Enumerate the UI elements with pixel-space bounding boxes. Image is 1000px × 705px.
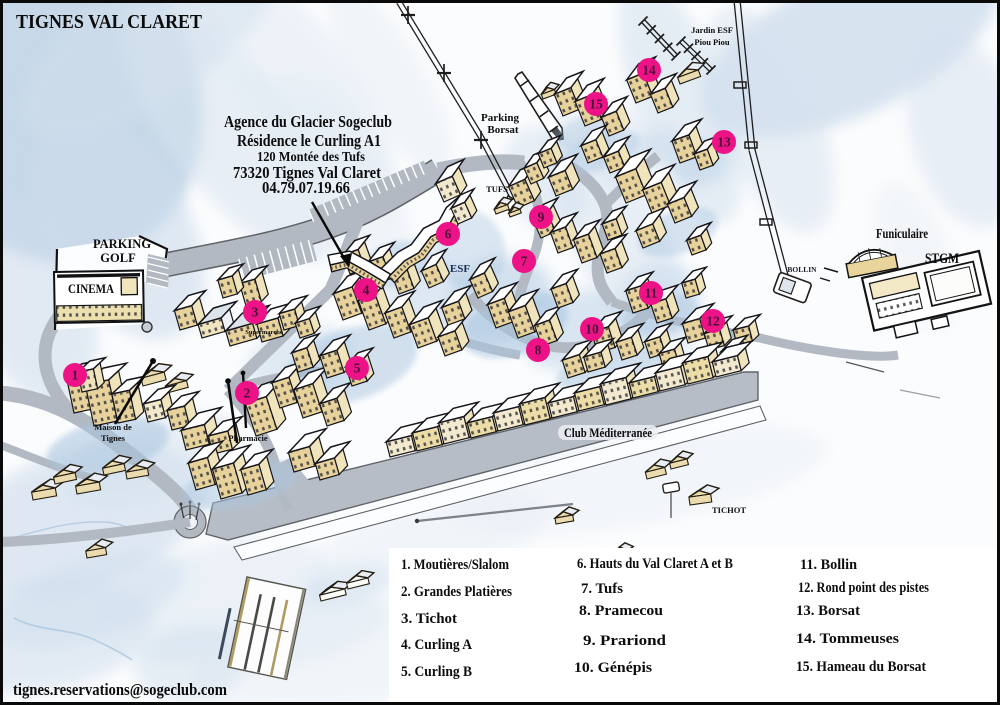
svg-text:9. Prariond: 9. Prariond bbox=[583, 633, 666, 649]
svg-text:9: 9 bbox=[538, 210, 545, 225]
svg-text:14: 14 bbox=[642, 63, 656, 78]
svg-text:Supermarché: Supermarché bbox=[245, 329, 283, 336]
svg-text:CINEMA: CINEMA bbox=[68, 282, 114, 296]
svg-text:14. Tommeuses: 14. Tommeuses bbox=[796, 631, 899, 647]
svg-text:Funiculaire: Funiculaire bbox=[876, 227, 928, 242]
svg-text:13: 13 bbox=[717, 135, 731, 150]
svg-text:5. Curling B: 5. Curling B bbox=[401, 664, 472, 680]
svg-text:4: 4 bbox=[363, 283, 370, 298]
svg-text:7: 7 bbox=[521, 254, 528, 269]
svg-text:6: 6 bbox=[445, 227, 452, 242]
svg-text:8. Pramecou: 8. Pramecou bbox=[579, 603, 663, 619]
svg-text:120 Montée des Tufs: 120 Montée des Tufs bbox=[257, 149, 365, 164]
svg-text:3: 3 bbox=[252, 305, 259, 320]
svg-text:Borsat: Borsat bbox=[487, 124, 519, 136]
svg-text:10. Génépis: 10. Génépis bbox=[574, 660, 652, 676]
svg-text:ESF: ESF bbox=[450, 263, 470, 275]
svg-text:Résidence le Curling A1: Résidence le Curling A1 bbox=[237, 131, 381, 150]
svg-text:10: 10 bbox=[585, 322, 599, 337]
svg-text:Piou Piou: Piou Piou bbox=[694, 37, 729, 47]
svg-text:15. Hameau du Borsat: 15. Hameau du Borsat bbox=[796, 659, 926, 675]
svg-text:12: 12 bbox=[706, 314, 720, 329]
svg-text:Pharmacie: Pharmacie bbox=[228, 433, 267, 443]
svg-text:4. Curling A: 4. Curling A bbox=[401, 637, 472, 653]
svg-text:Maison de: Maison de bbox=[94, 422, 132, 432]
svg-text:13. Borsat: 13. Borsat bbox=[796, 603, 860, 619]
svg-text:5: 5 bbox=[354, 361, 361, 376]
svg-text:04.79.07.19.66: 04.79.07.19.66 bbox=[262, 178, 350, 197]
svg-text:Club Méditerranée: Club Méditerranée bbox=[564, 426, 652, 440]
svg-text:BOLLIN: BOLLIN bbox=[787, 265, 817, 274]
svg-text:11: 11 bbox=[645, 286, 658, 301]
svg-text:2: 2 bbox=[244, 386, 251, 401]
svg-text:TIGNES VAL CLARET: TIGNES VAL CLARET bbox=[16, 11, 203, 33]
svg-text:11. Bollin: 11. Bollin bbox=[800, 557, 857, 573]
svg-text:Jardin ESF: Jardin ESF bbox=[691, 25, 733, 35]
svg-text:2. Grandes Platières: 2. Grandes Platières bbox=[401, 584, 512, 600]
svg-text:Parking: Parking bbox=[481, 112, 519, 124]
svg-text:TUFS: TUFS bbox=[486, 184, 508, 194]
svg-text:PARKING: PARKING bbox=[93, 237, 151, 251]
svg-text:7. Tufs: 7. Tufs bbox=[581, 581, 623, 597]
svg-text:1: 1 bbox=[72, 368, 79, 383]
svg-text:Tignes: Tignes bbox=[101, 433, 126, 443]
svg-text:1. Moutières/Slalom: 1. Moutières/Slalom bbox=[401, 557, 509, 573]
svg-text:15: 15 bbox=[589, 97, 603, 112]
svg-text:Agence du Glacier Sogeclub: Agence du Glacier Sogeclub bbox=[224, 112, 392, 131]
svg-text:6. Hauts du Val Claret A et B: 6. Hauts du Val Claret A et B bbox=[577, 556, 733, 572]
svg-text:12. Rond point des pistes: 12. Rond point des pistes bbox=[798, 580, 929, 596]
svg-text:GOLF: GOLF bbox=[100, 251, 136, 265]
svg-text:STGM: STGM bbox=[925, 251, 959, 267]
svg-text:TICHOT: TICHOT bbox=[712, 505, 746, 515]
svg-text:tignes.reservations@sogeclub.c: tignes.reservations@sogeclub.com bbox=[13, 680, 227, 699]
svg-text:3. Tichot: 3. Tichot bbox=[401, 611, 457, 627]
svg-text:8: 8 bbox=[535, 343, 542, 358]
